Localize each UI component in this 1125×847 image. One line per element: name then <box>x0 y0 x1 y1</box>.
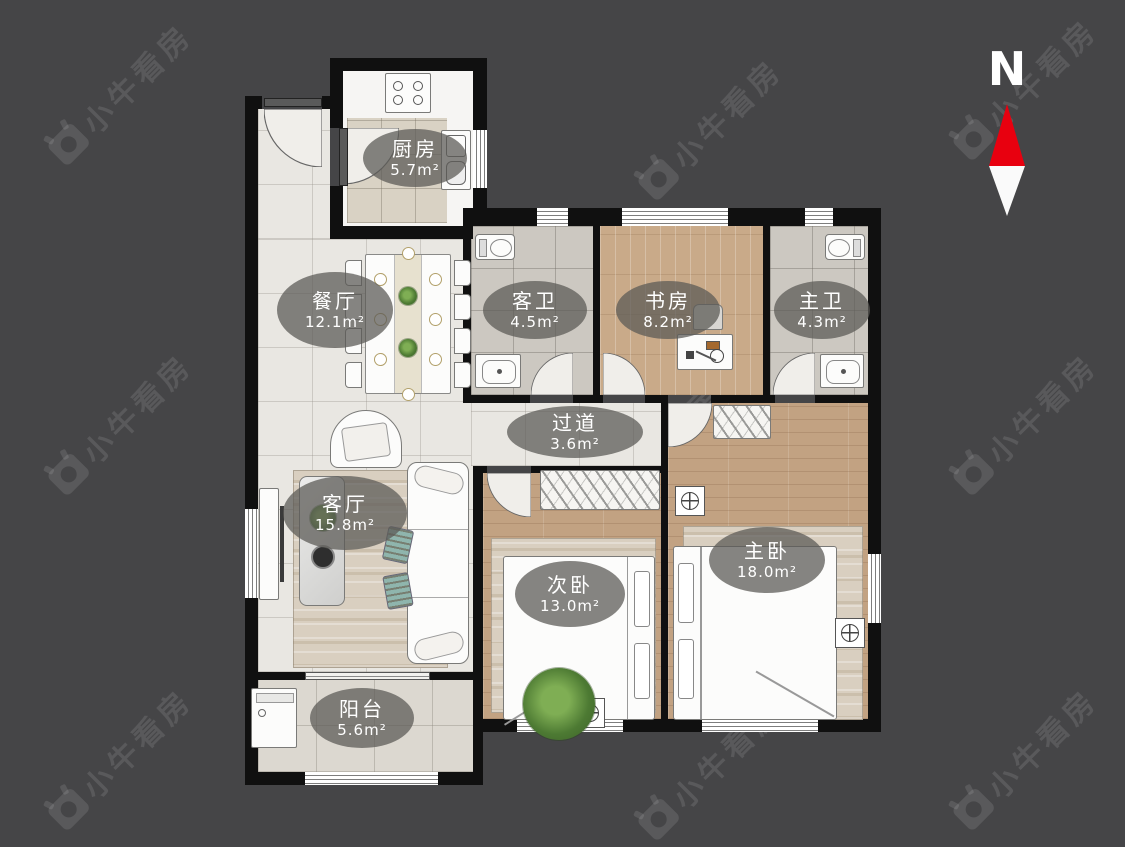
wall <box>245 96 262 109</box>
window <box>803 208 835 226</box>
wall <box>763 208 770 395</box>
wall <box>645 395 668 403</box>
floor-register-icon <box>675 486 705 516</box>
wall <box>463 395 530 403</box>
window <box>303 772 440 785</box>
kitchen-door <box>343 128 399 184</box>
window <box>245 507 258 600</box>
watermark-logo-icon <box>951 787 996 832</box>
dining-chair <box>454 260 471 286</box>
watermark-text: 小牛看房 <box>71 677 201 807</box>
watermark-logo-icon <box>636 797 681 842</box>
wall <box>330 58 343 128</box>
guest-bath-door <box>531 353 573 395</box>
toilet-icon <box>825 234 865 260</box>
dining-chair <box>345 260 362 286</box>
wardrobe <box>713 405 771 439</box>
entry-door-leaf <box>264 98 322 107</box>
window <box>535 208 570 226</box>
tv-cabinet <box>259 488 279 600</box>
wall <box>573 395 603 403</box>
table-plant-icon <box>399 339 417 357</box>
stove-icon <box>385 73 431 113</box>
dining-table <box>365 254 451 394</box>
watermark-text: 小牛看房 <box>976 342 1106 472</box>
watermark: 小牛看房 <box>41 12 201 172</box>
floor-plan: 厨房 5.7m² 餐厅 12.1m² 客卫 4.5m² 书房 8.2m² 主卫 … <box>235 58 883 785</box>
compass: N <box>975 46 1039 216</box>
dining-chair <box>454 294 471 320</box>
bathroom-sink-icon <box>475 354 521 388</box>
wall <box>430 672 483 680</box>
table-plant-icon <box>399 287 417 305</box>
wardrobe <box>540 470 660 510</box>
wall <box>330 58 487 71</box>
window <box>700 719 820 732</box>
wall <box>815 395 881 403</box>
window <box>620 208 730 226</box>
watermark-text: 小牛看房 <box>71 12 201 142</box>
watermark-logo-icon <box>951 452 996 497</box>
wall <box>593 208 600 395</box>
balcony-sliding-door <box>305 672 430 680</box>
room-hallway-floor <box>471 403 661 466</box>
wall <box>330 226 473 239</box>
watermark-text: 小牛看房 <box>976 677 1106 807</box>
wall <box>868 208 881 732</box>
kitchen-sink-icon <box>441 130 471 190</box>
watermark: 小牛看房 <box>41 677 201 837</box>
sofa-ottoman <box>382 572 414 610</box>
window <box>868 552 881 625</box>
watermark-logo-icon <box>46 452 91 497</box>
entry-door <box>264 109 322 167</box>
balcony-plant-icon <box>523 668 595 740</box>
compass-north-label: N <box>988 46 1027 92</box>
bathroom-sink-icon <box>820 354 864 388</box>
dining-chair <box>345 328 362 354</box>
wall <box>245 672 305 680</box>
watermark-text: 小牛看房 <box>71 342 201 472</box>
desk-icon <box>677 334 733 370</box>
window <box>473 128 487 190</box>
dining-chair <box>345 362 362 388</box>
coffee-table-plant-icon <box>310 505 336 531</box>
wall <box>473 466 483 785</box>
study-door <box>603 353 645 395</box>
master-bedroom-door <box>668 403 712 447</box>
desk-chair <box>693 304 723 330</box>
watermark-logo-icon <box>46 787 91 832</box>
kitchen-door-leaf <box>339 128 348 186</box>
floor-register-icon <box>835 618 865 648</box>
watermark: 小牛看房 <box>946 342 1106 502</box>
wall <box>245 96 258 785</box>
wall <box>661 403 668 719</box>
sofa <box>407 462 469 664</box>
watermark: 小牛看房 <box>41 342 201 502</box>
toilet-icon <box>475 234 515 260</box>
dining-chair <box>454 362 471 388</box>
compass-needle-icon <box>987 104 1027 216</box>
tv-icon <box>280 506 284 582</box>
floorplan-canvas: 小牛看房 小牛看房 小牛看房 小牛看房 小牛看房 小牛看房 小牛看房 小牛看房 … <box>0 0 1125 844</box>
dining-chair <box>454 328 471 354</box>
dining-chair <box>345 294 362 320</box>
watermark: 小牛看房 <box>946 677 1106 837</box>
second-bedroom-door <box>487 473 531 517</box>
master-bath-door <box>773 353 815 395</box>
coffee-table <box>299 476 345 606</box>
watermark-logo-icon <box>46 122 91 167</box>
washing-machine-icon <box>251 688 297 748</box>
bed-master-bedroom <box>673 546 837 720</box>
wall <box>711 395 775 403</box>
